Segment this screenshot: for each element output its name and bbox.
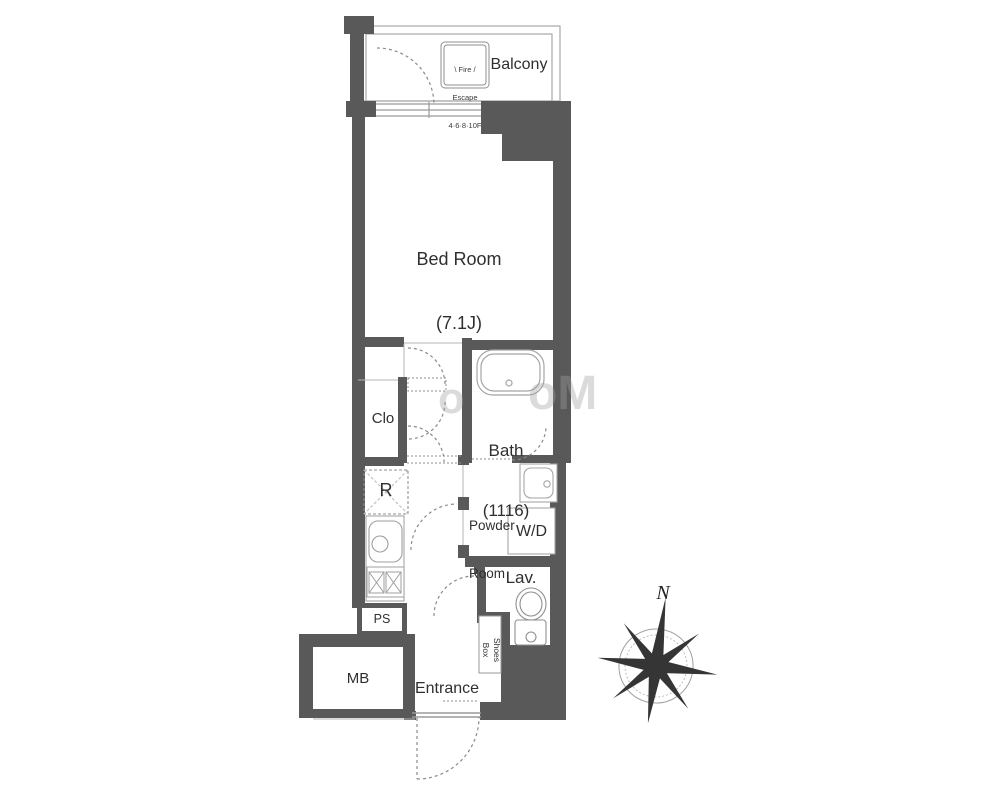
kitchen-sink-icon [369, 521, 402, 562]
lav-door-arc [434, 576, 474, 616]
compass-north-label: N [648, 582, 678, 606]
closet-label: Clo [361, 410, 405, 428]
balcony-door-arc [377, 48, 434, 104]
compass-rose-icon [590, 589, 727, 732]
entrance-door-arc [417, 717, 479, 779]
lavatory-label: Lav. [496, 568, 546, 588]
watermark-fragment-left: o [438, 374, 465, 424]
meter-box-label: MB [313, 670, 403, 688]
shoes-box-label: Shoes Box [478, 627, 502, 675]
stove-icon [367, 567, 404, 597]
washer-dryer-label: W/D [508, 523, 555, 542]
powder-door-arc [411, 504, 457, 550]
balcony-label: Balcony [488, 56, 550, 75]
closet-door-arc-bottom [408, 426, 444, 462]
pipe-shaft-label: PS [362, 612, 402, 627]
entrance-threshold [412, 713, 481, 717]
entrance-label: Entrance [414, 680, 480, 699]
fire-escape-label: \ Fire / Escape 4·6·8·10F [442, 46, 488, 140]
bedroom-label: Bed Room (7.1J) [389, 207, 529, 356]
floorplan-canvas: o oM \ Fire / Escape 4·6·8·10F Balcony B… [0, 0, 999, 801]
refrigerator-label: R [366, 480, 406, 501]
toilet-icon [515, 588, 546, 645]
